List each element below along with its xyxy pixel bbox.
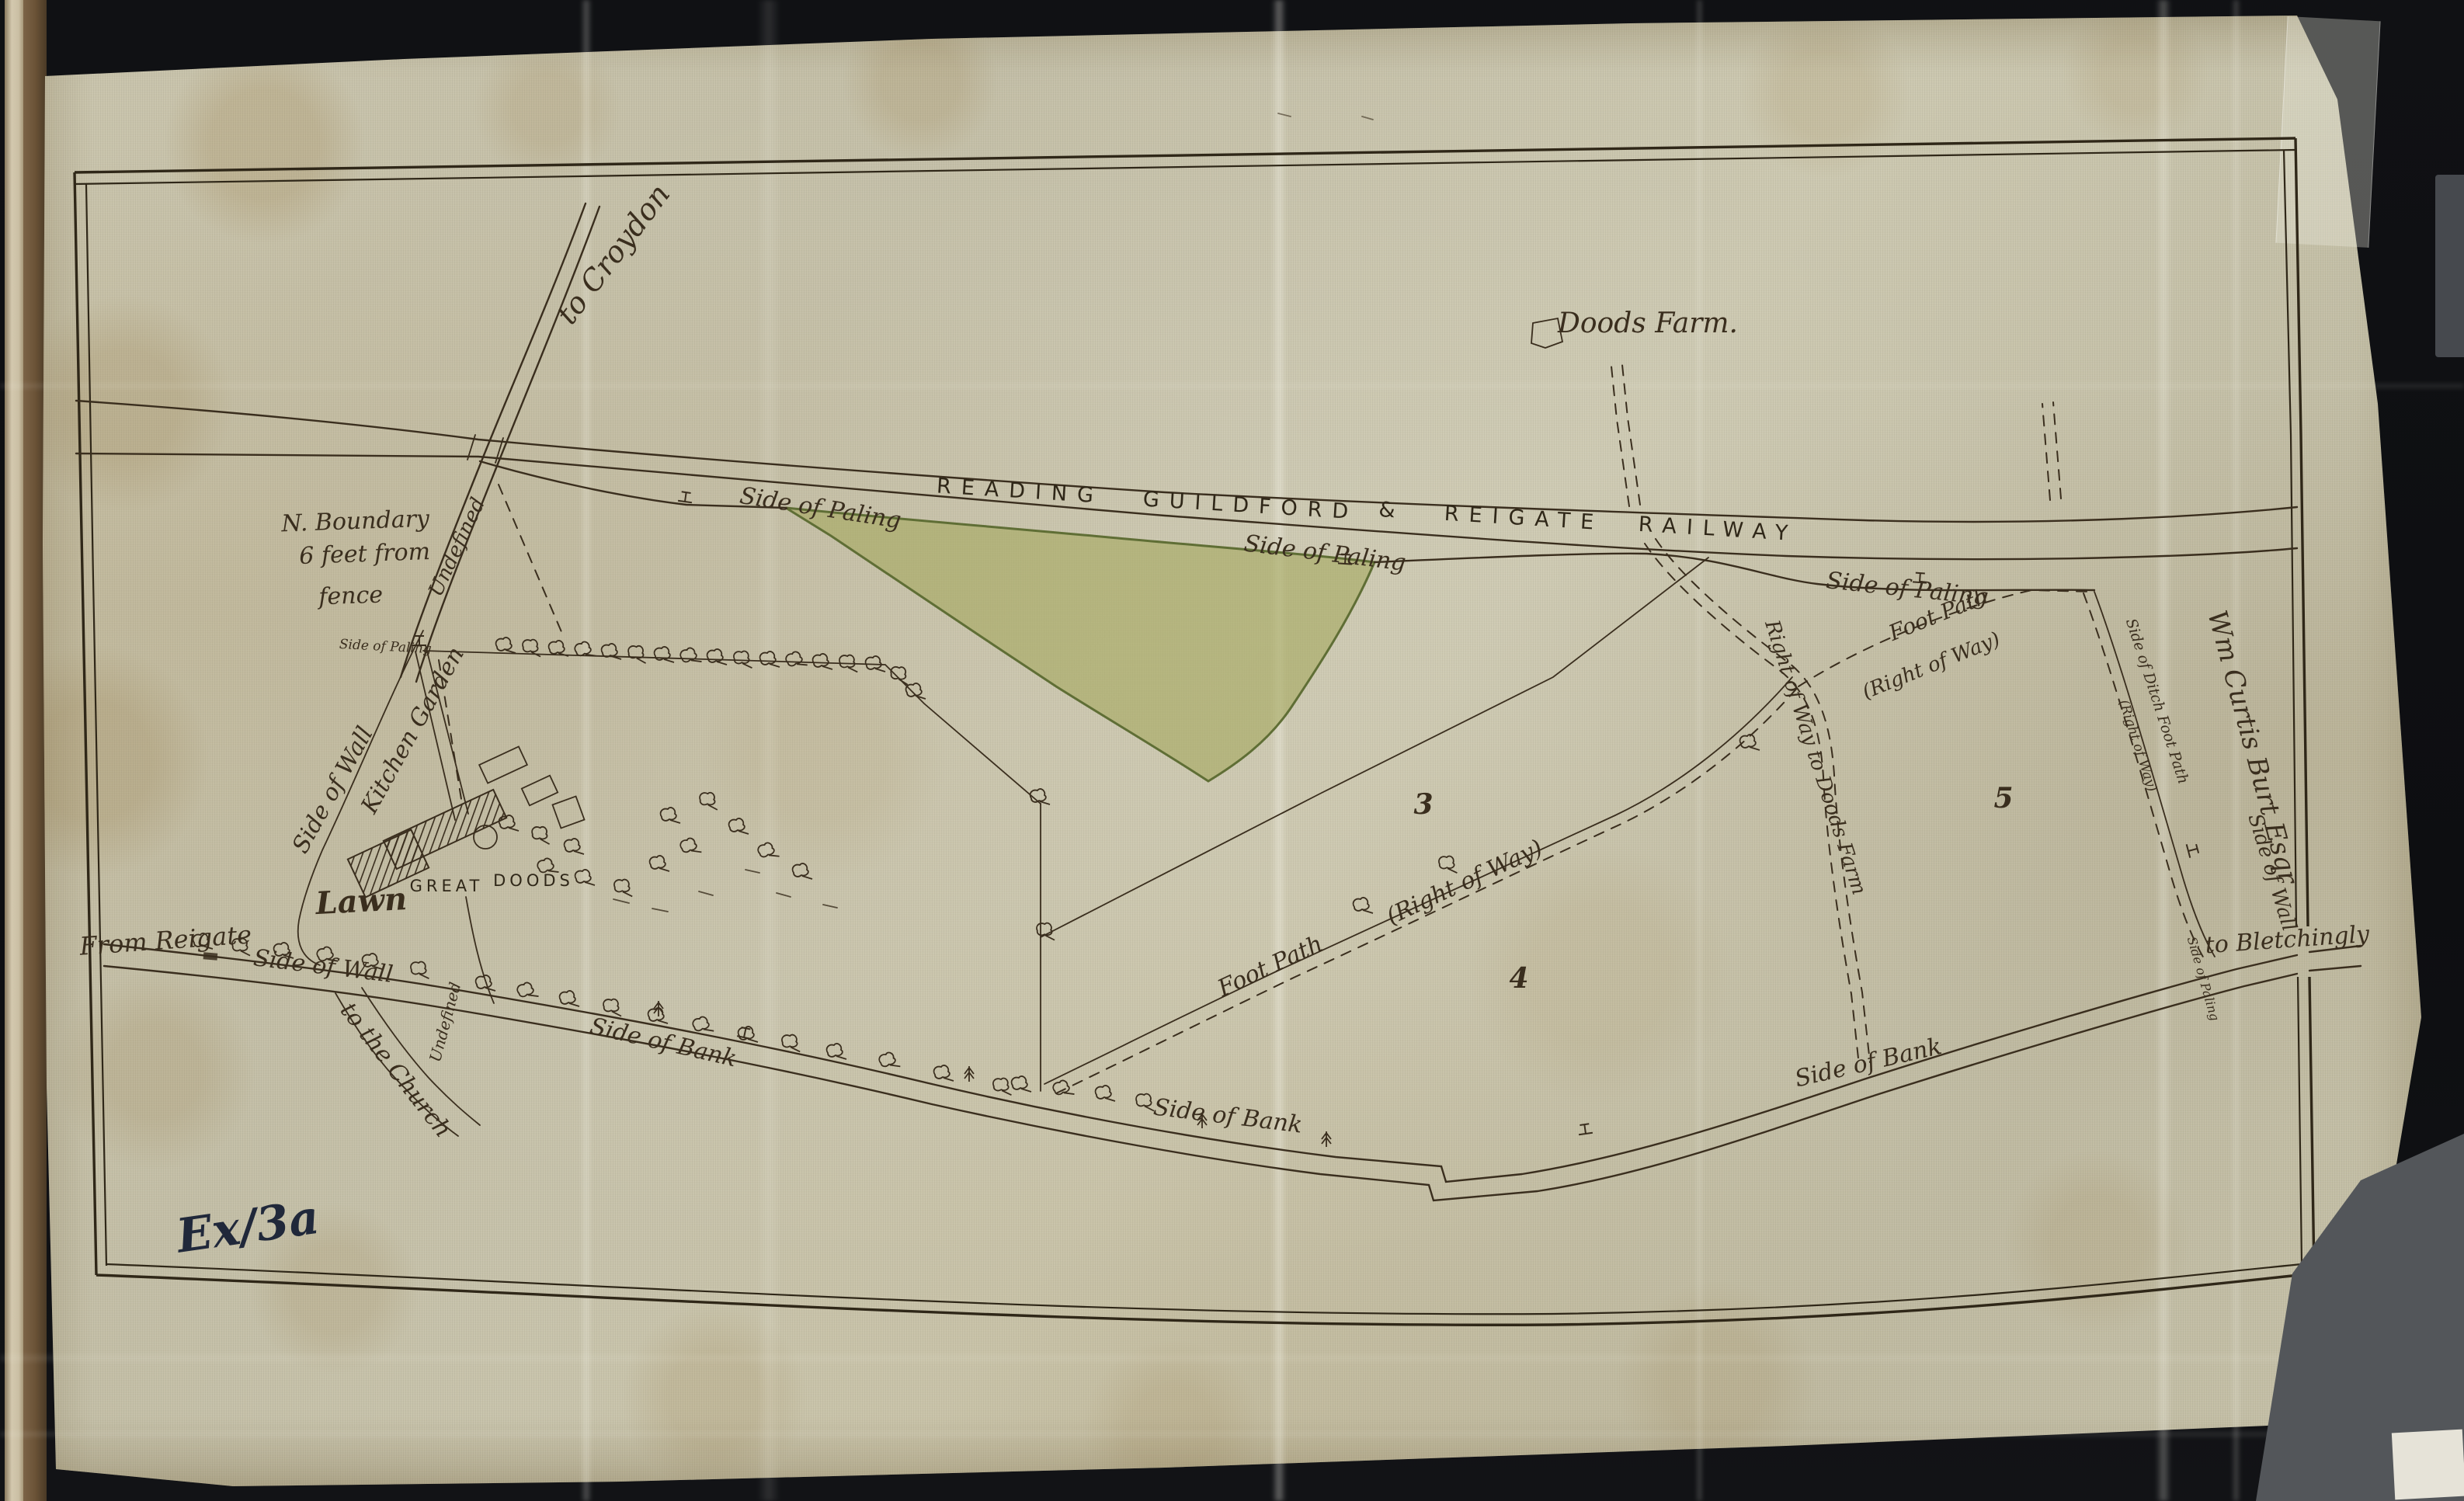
railway-name-word-1: READING xyxy=(936,474,1104,508)
label-from-reigate: From Reigate xyxy=(78,919,252,961)
scan-background: to Croydon N. Boundary 6 feet from fence… xyxy=(0,0,2464,1501)
label-great: GREAT xyxy=(410,877,484,895)
label-side-of-bank-2: Side of Bank xyxy=(1152,1093,1304,1138)
label-foot-path-1: Foot Path xyxy=(1213,930,1327,1002)
label-n-boundary-line2: 6 feet from xyxy=(299,538,431,570)
croydon-road xyxy=(401,203,599,682)
label-to-bletchingly: to Bletchingly xyxy=(2204,921,2371,960)
label-undefined-road-2: Undefined xyxy=(426,980,464,1064)
label-lawn: Lawn xyxy=(314,881,408,922)
label-foot-path-2-right-of-way: (Right of Way) xyxy=(1859,627,2004,704)
railway-name-word-3: & xyxy=(1378,498,1406,523)
label-foot-path-1-right-of-way: (Right of Way) xyxy=(1382,835,1547,931)
railway-name-word-4: REIGATE xyxy=(1444,502,1604,535)
label-doods-farm: Doods Farm. xyxy=(1557,307,1738,339)
label-n-boundary-line1: N. Boundary xyxy=(280,506,431,538)
label-doods: DOODS xyxy=(493,871,574,890)
label-side-of-ditch-foot-path: Side of Ditch Foot Path xyxy=(2122,617,2192,787)
label-undefined-road-1: Undefined xyxy=(424,494,490,600)
field-number-4: 4 xyxy=(1509,962,1528,995)
label-kitchen-garden: Kitchen Garden xyxy=(356,642,470,818)
exhibit-mark: Ex/3a xyxy=(172,1190,322,1264)
doods-farm-track xyxy=(1611,357,1870,1065)
label-n-boundary-line3: fence xyxy=(317,582,384,611)
field-number-3: 3 xyxy=(1413,788,1433,821)
label-side-of-bank-3: Side of Bank xyxy=(1792,1033,1944,1093)
label-to-croydon: to Croydon xyxy=(550,178,677,331)
label-side-of-wall-south: Side of Wall xyxy=(252,944,394,989)
map-drawing: to Croydon N. Boundary 6 feet from fence… xyxy=(0,0,2464,1501)
paper-tag-bottom-right xyxy=(2392,1430,2464,1500)
railway-lines xyxy=(76,401,2297,559)
label-right-of-way-to-doods-farm: Right of Way to Doods Farm xyxy=(1760,617,1871,898)
east-lane xyxy=(2042,402,2215,958)
railway-name-word-2: GUILDFORD xyxy=(1142,488,1359,525)
field-number-5: 5 xyxy=(1993,782,2013,815)
